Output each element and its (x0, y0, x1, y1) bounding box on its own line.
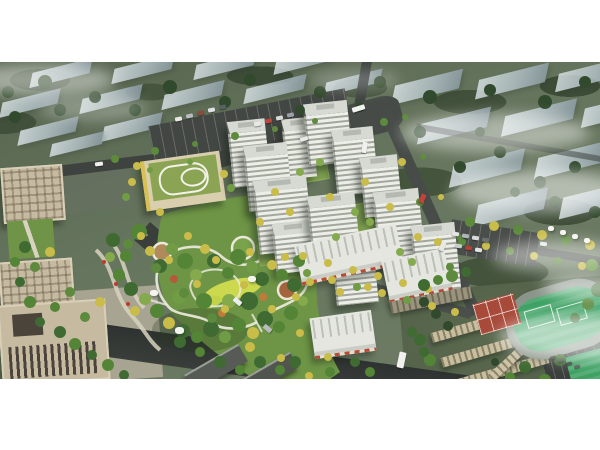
cloud (452, 170, 600, 212)
clouds-layer (0, 62, 600, 379)
cloud (543, 275, 600, 299)
cloud (500, 314, 600, 360)
top-white-margin (0, 0, 600, 62)
cloud (38, 96, 148, 120)
cloud (310, 70, 400, 90)
cloud (400, 114, 590, 152)
aerial-rendering (0, 62, 600, 379)
cloud (0, 64, 115, 96)
bottom-white-margin (0, 379, 600, 450)
screenshot (0, 0, 600, 450)
cloud (492, 240, 600, 272)
